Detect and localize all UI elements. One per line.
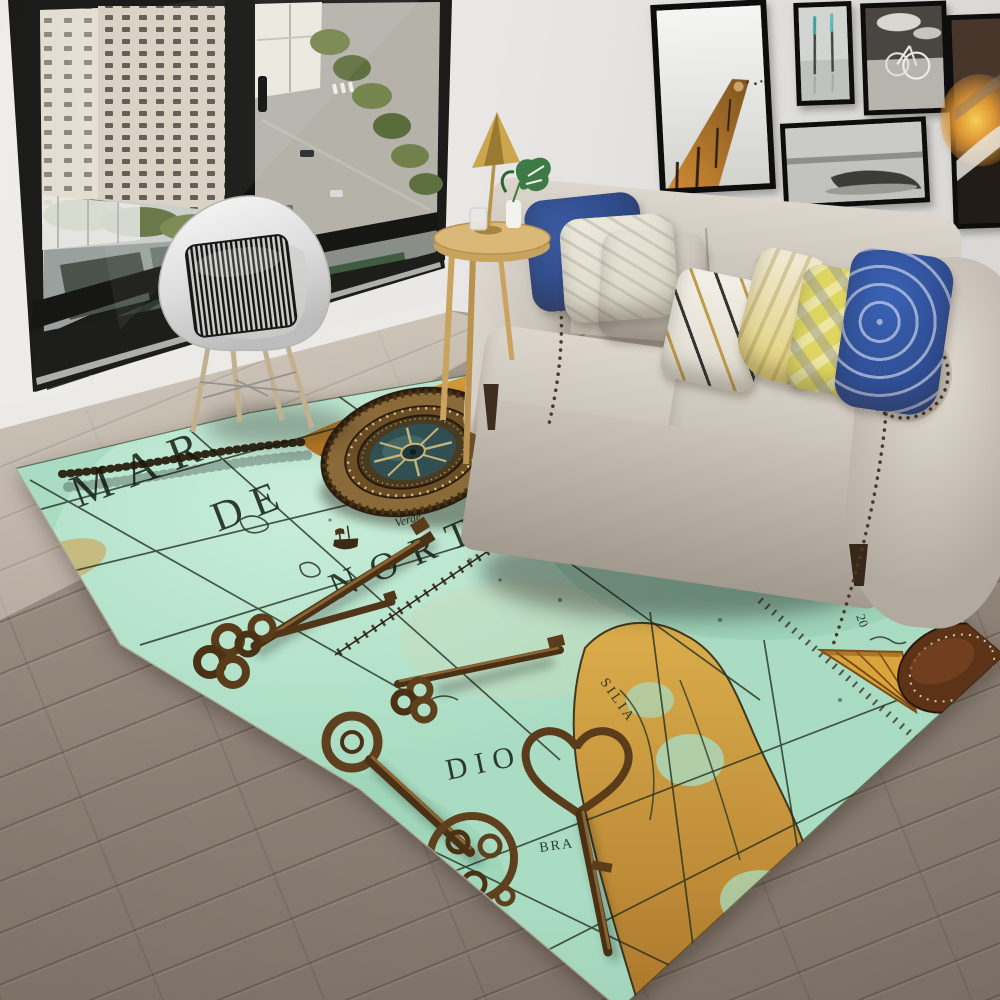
chair-striped-pillow [185,234,297,338]
artwork-pier [650,0,776,195]
living-room-photo: MAR DE NORT DIO I. de Cabo Verde SILIA B… [0,0,1000,1000]
artwork-shoreline [780,116,930,210]
artwork-bicycle [860,1,950,116]
window-transom-left [31,248,225,330]
glass-jar [470,208,487,230]
window-pane-street [255,2,443,251]
glass-reflection [60,0,420,330]
window-pane-street-lower [255,224,437,300]
artwork-sunset-wave [936,13,1000,230]
window-handle [258,76,267,112]
chair-shell [159,196,331,351]
window-pane-city-left [40,6,232,335]
chair-shadow [205,405,355,447]
window-mullion [225,0,255,258]
artwork-buoys [793,1,855,106]
window-transom-right [255,212,438,266]
